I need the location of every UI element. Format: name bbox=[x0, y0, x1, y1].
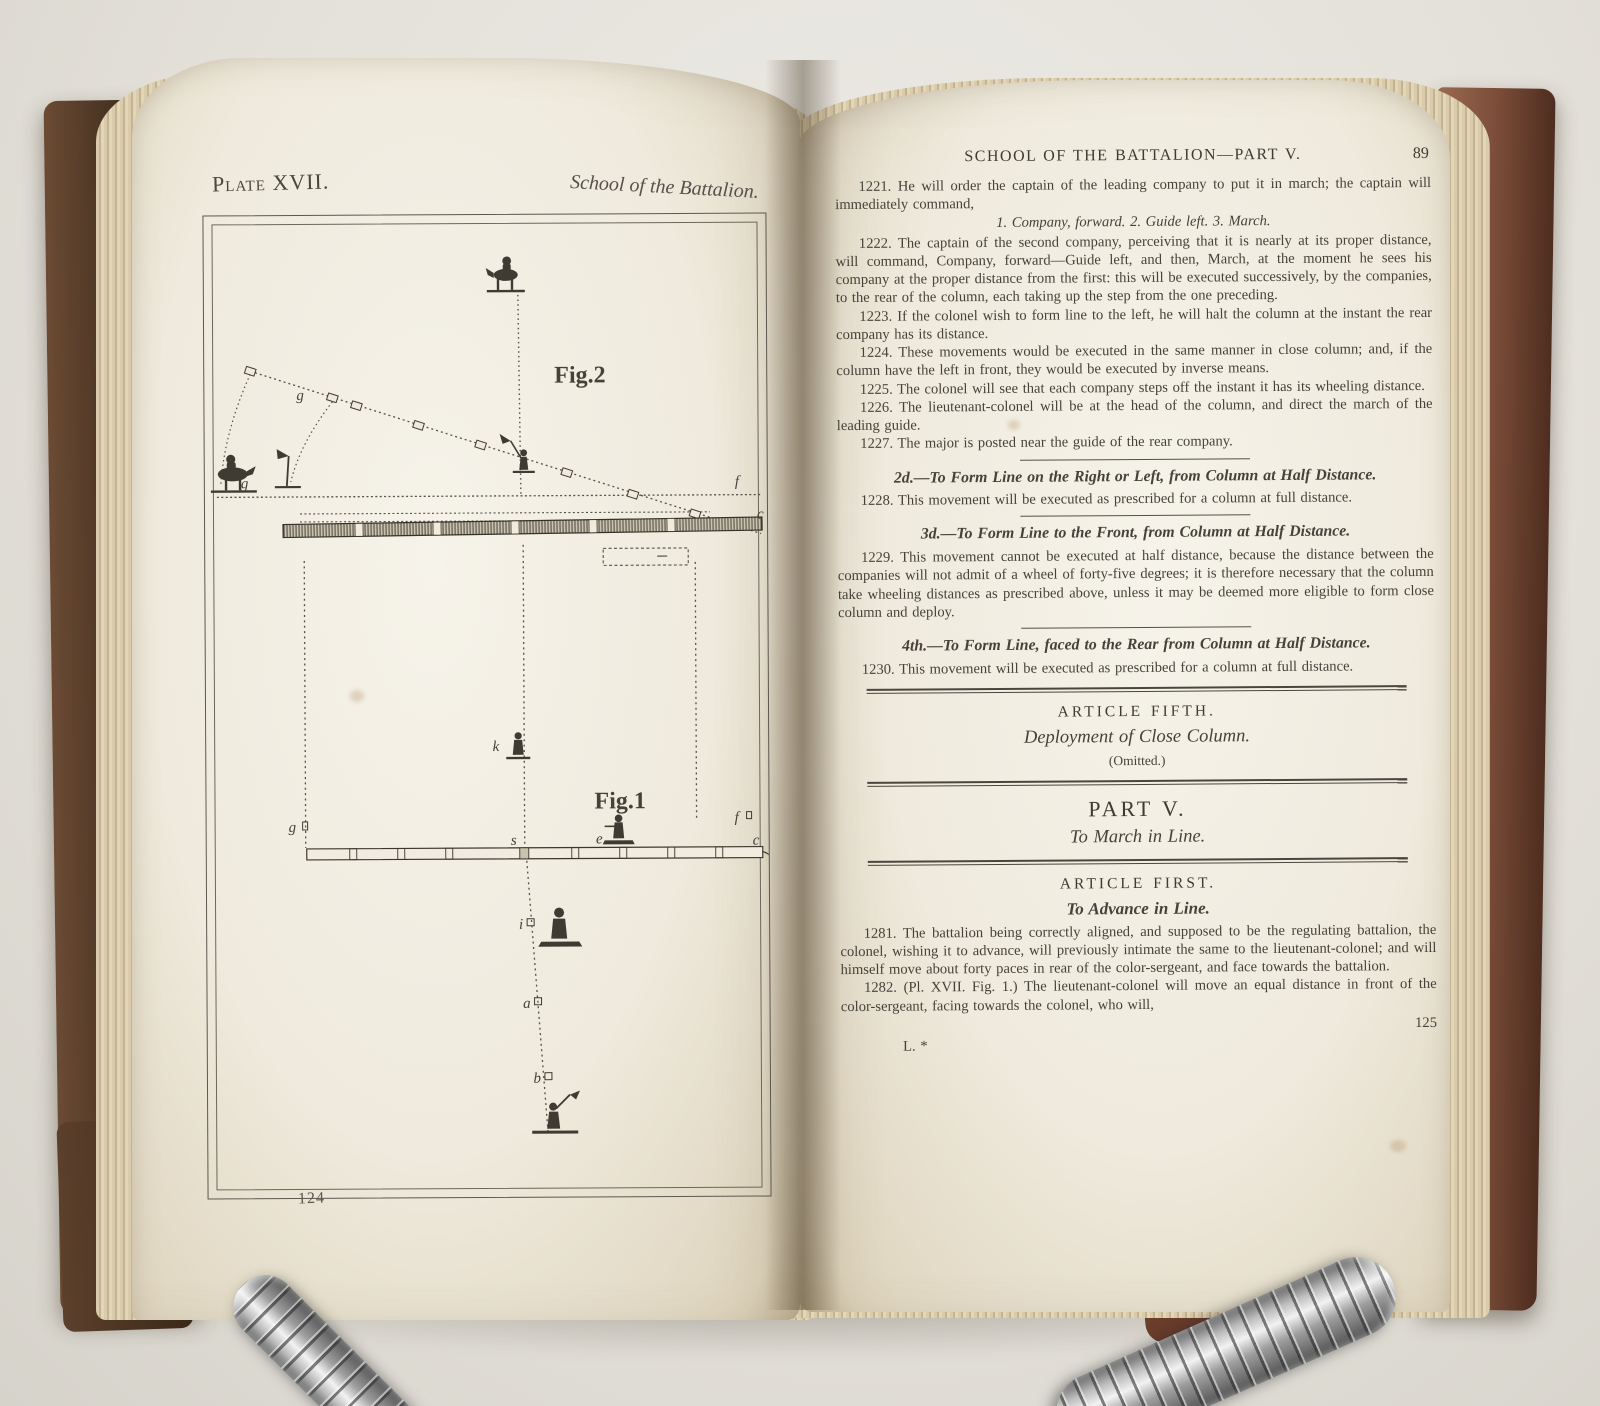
plate-border: Fig.2 g g f c Fig.1 k g s e f c i a b bbox=[202, 213, 771, 1200]
officer-e-icon bbox=[603, 814, 635, 844]
fig2-label-f: f bbox=[735, 474, 741, 490]
fig2-company-markers bbox=[244, 364, 700, 521]
fig1-label-c: c bbox=[753, 833, 760, 849]
part-v-head: PART V. bbox=[839, 792, 1435, 824]
paragraph-1221: 1221. He will order the captain of the l… bbox=[835, 174, 1431, 215]
lieutenant-colonel-icon bbox=[506, 732, 530, 759]
article-fifth-note: (Omitted.) bbox=[839, 751, 1435, 772]
fig1-battalion-bar bbox=[307, 847, 771, 864]
fig2-battalion-bar bbox=[283, 517, 762, 538]
photo-of-open-book: Plate XVII. School of the Battalion. bbox=[0, 0, 1600, 1406]
fig1-label-i: i bbox=[519, 917, 523, 933]
running-head: SCHOOL OF THE BATTALION—PART V. 89 bbox=[835, 144, 1431, 168]
plate-engraving: Fig.2 g g f c Fig.1 k g s e f c i a b bbox=[203, 214, 770, 1199]
section-rule bbox=[1020, 458, 1250, 461]
book-gutter-shadow bbox=[765, 60, 841, 1310]
fig1-caption: Fig.1 bbox=[594, 788, 645, 814]
right-page-footer: 125 bbox=[841, 1014, 1437, 1036]
paragraph-1224: 1224. These movements would be executed … bbox=[836, 340, 1432, 381]
heading-3d: 3d.—To Form Line to the Front, from Colu… bbox=[837, 521, 1433, 545]
horseman-icon bbox=[211, 455, 257, 493]
paragraph-1282: 1282. (Pl. XVII. Fig. 1.) The lieutenant… bbox=[841, 975, 1437, 1016]
signature-mark: L. * bbox=[903, 1034, 1437, 1056]
fig1-label-e: e bbox=[596, 831, 603, 847]
fig1-label-k: k bbox=[493, 739, 500, 755]
double-rule bbox=[867, 778, 1407, 787]
paragraph-1228: 1228. This movement will be executed as … bbox=[837, 488, 1433, 510]
paragraph-1223: 1223. If the colonel wish to form line t… bbox=[836, 304, 1432, 345]
paragraph-1229: 1229. This movement cannot be executed a… bbox=[838, 545, 1434, 622]
section-rule bbox=[1021, 626, 1251, 629]
article-fifth-title: Deployment of Close Column. bbox=[839, 723, 1435, 750]
fig1-label-f: f bbox=[735, 810, 741, 826]
heading-2d: 2d.—To Form Line on the Right or Left, f… bbox=[837, 464, 1433, 488]
double-rule bbox=[867, 685, 1407, 694]
fig2-dashed-company bbox=[603, 548, 688, 565]
heading-4th: 4th.—To Form Line, faced to the Rear fro… bbox=[838, 633, 1434, 657]
running-head-title: SCHOOL OF THE BATTALION—PART V. bbox=[964, 145, 1301, 167]
part-v-title: To March in Line. bbox=[840, 824, 1436, 851]
color-sergeant-icon bbox=[532, 1091, 580, 1134]
fig1-label-g: g bbox=[289, 820, 297, 836]
fig2-linework bbox=[216, 294, 761, 537]
right-page-text-column: SCHOOL OF THE BATTALION—PART V. 89 1221.… bbox=[835, 144, 1437, 1057]
fig1-label-s: s bbox=[511, 833, 517, 849]
paragraph-1230: 1230. This movement will be executed as … bbox=[838, 657, 1434, 679]
paragraph-1222: 1222. The captain of the second company,… bbox=[835, 231, 1431, 308]
paragraph-1281: 1281. The battalion being correctly alig… bbox=[840, 921, 1436, 980]
article-first-title: To Advance in Line. bbox=[840, 895, 1436, 920]
fig2-label-g-lower: g bbox=[241, 476, 249, 492]
mounted-officer-icon bbox=[486, 256, 525, 292]
paragraph-1227: 1227. The major is posted near the guide… bbox=[837, 431, 1433, 453]
guide-soldier-icon bbox=[538, 908, 582, 947]
guidon-flag-icon bbox=[275, 449, 301, 488]
color-bearer-icon bbox=[500, 434, 535, 473]
fig1-label-a: a bbox=[523, 996, 531, 1012]
fig2-label-c: c bbox=[757, 507, 764, 523]
plate-title: Plate XVII. bbox=[212, 168, 330, 197]
left-page-number: 124 bbox=[298, 1190, 326, 1209]
right-page-number: 125 bbox=[1415, 1014, 1437, 1032]
paragraph-1226: 1226. The lieutenant-colonel will be at … bbox=[837, 395, 1433, 436]
fig1-ticks bbox=[303, 812, 752, 830]
fig2-label-g-upper: g bbox=[296, 388, 304, 404]
section-rule bbox=[1020, 515, 1250, 518]
foxing-spot bbox=[1390, 1140, 1406, 1152]
fig1-label-b: b bbox=[533, 1071, 541, 1087]
article-fifth-head: ARTICLE FIFTH. bbox=[839, 700, 1435, 724]
article-first-head: ARTICLE FIRST. bbox=[840, 872, 1436, 896]
fig1-linework bbox=[304, 544, 698, 1136]
fig2-caption: Fig.2 bbox=[554, 362, 605, 388]
head-page-number: 89 bbox=[1413, 144, 1429, 164]
double-rule bbox=[868, 857, 1408, 866]
